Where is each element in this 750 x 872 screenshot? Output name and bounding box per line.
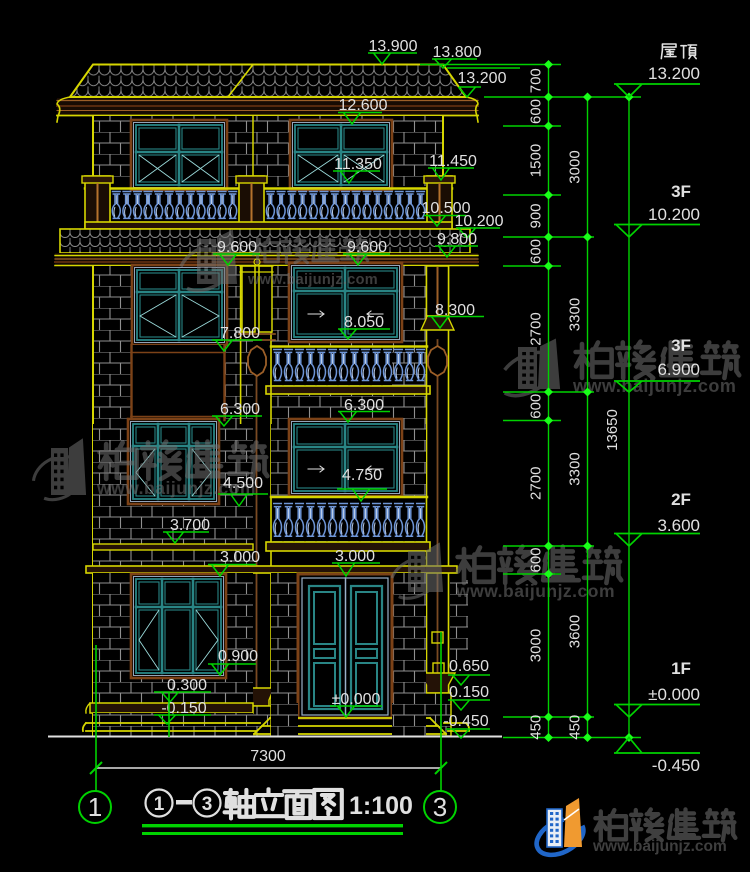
svg-text:1F: 1F: [671, 659, 691, 678]
svg-text:12.600: 12.600: [339, 97, 388, 114]
svg-text:-0.450: -0.450: [443, 713, 488, 730]
svg-text:1500: 1500: [528, 144, 545, 177]
svg-text:4.750: 4.750: [342, 467, 382, 484]
svg-text:13650: 13650: [604, 409, 621, 451]
svg-text:0.900: 0.900: [218, 648, 258, 665]
svg-text:2F: 2F: [671, 490, 691, 509]
svg-text:1:100: 1:100: [349, 792, 413, 820]
svg-text:1: 1: [154, 794, 165, 815]
svg-text:700: 700: [528, 68, 545, 93]
svg-text:3000: 3000: [567, 150, 584, 183]
svg-text:2700: 2700: [528, 312, 545, 345]
svg-text:±0.000: ±0.000: [648, 685, 700, 704]
svg-text:1: 1: [88, 792, 102, 822]
svg-text:0.150: 0.150: [449, 684, 489, 701]
svg-text:www.baijunjz.com: www.baijunjz.com: [572, 376, 736, 396]
svg-text:3.000: 3.000: [220, 549, 260, 566]
svg-text:450: 450: [567, 715, 584, 740]
svg-text:3: 3: [433, 792, 447, 822]
svg-text:600: 600: [528, 239, 545, 264]
svg-text:600: 600: [528, 99, 545, 124]
svg-text:13.200: 13.200: [648, 64, 700, 83]
svg-text:7300: 7300: [250, 748, 286, 765]
svg-text:600: 600: [528, 547, 545, 572]
svg-text:www.baijunjz.com: www.baijunjz.com: [592, 838, 727, 855]
svg-text:3.600: 3.600: [657, 516, 700, 535]
svg-text:450: 450: [528, 715, 545, 740]
svg-text:3000: 3000: [528, 629, 545, 662]
svg-text:3300: 3300: [567, 298, 584, 331]
svg-text:13.200: 13.200: [458, 70, 507, 87]
svg-text:900: 900: [528, 203, 545, 228]
svg-text:3F: 3F: [671, 182, 691, 201]
svg-text:0.650: 0.650: [449, 658, 489, 675]
svg-text:3F: 3F: [671, 336, 691, 355]
svg-text:10.200: 10.200: [648, 205, 700, 224]
svg-text:www.baijunjz.com: www.baijunjz.com: [247, 272, 378, 288]
svg-text:4.500: 4.500: [223, 475, 263, 492]
svg-text:-0.450: -0.450: [652, 756, 700, 775]
svg-text:3: 3: [202, 794, 213, 815]
svg-text:3600: 3600: [567, 615, 584, 648]
svg-text:3300: 3300: [567, 452, 584, 485]
svg-text:www.baijunjz.com: www.baijunjz.com: [455, 581, 615, 601]
svg-text:2700: 2700: [528, 467, 545, 500]
svg-text:600: 600: [528, 394, 545, 419]
svg-text:6.900: 6.900: [657, 360, 700, 379]
